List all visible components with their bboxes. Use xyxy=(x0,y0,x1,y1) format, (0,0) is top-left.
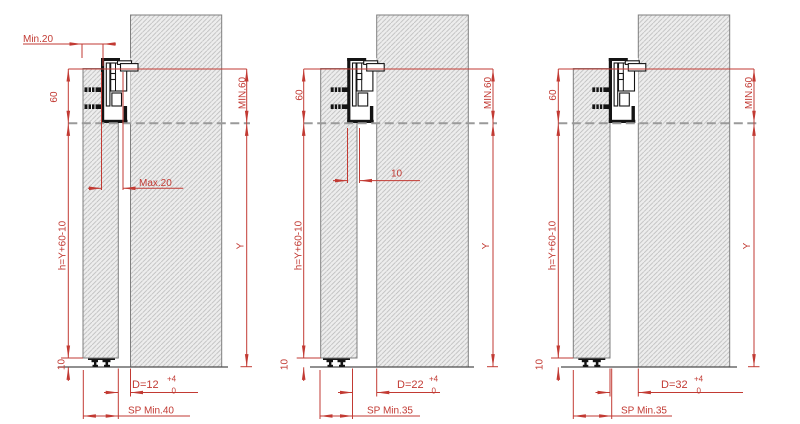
floor-guide xyxy=(323,359,350,367)
dim-label: h=Y+60-10 xyxy=(58,220,69,270)
dim-label: 0 xyxy=(172,387,177,396)
door-panel xyxy=(573,69,610,359)
dim-label: h=Y+60-10 xyxy=(294,220,305,270)
section-variant-d12: Min.20 60 MIN.60 Max.20 h=Y+60-10 10 Y D… xyxy=(23,15,252,419)
dim-label: D=12 xyxy=(132,379,159,391)
dim-label: SP Min.35 xyxy=(621,406,667,417)
drawing-canvas: Min.20 60 MIN.60 Max.20 h=Y+60-10 10 Y D… xyxy=(0,0,800,424)
dim-label: +4 xyxy=(694,375,704,384)
dim-label: h=Y+60-10 xyxy=(548,220,559,270)
section-variant-d32: 60 MIN.60 h=Y+60-10 10 Y D=32 +4 0 SP Mi… xyxy=(535,15,760,419)
section-variant-d22: 60 MIN.60 10 h=Y+60-10 10 Y D=22 +4 0 SP… xyxy=(280,15,499,419)
dim-label: 10 xyxy=(535,359,546,371)
technical-drawing: Min.20 60 MIN.60 Max.20 h=Y+60-10 10 Y D… xyxy=(0,0,800,424)
dim-label: SP Min.35 xyxy=(367,406,413,417)
dim-label: MIN.60 xyxy=(483,76,494,109)
dim-label: 0 xyxy=(432,387,437,396)
dim-label: SP Min.40 xyxy=(128,406,174,417)
dim-label: 0 xyxy=(697,387,702,396)
dim-label: Min.20 xyxy=(23,34,53,45)
wall-section xyxy=(377,15,469,367)
dim-label: MIN.60 xyxy=(744,76,755,109)
dim-label: D=22 xyxy=(397,379,424,391)
dim-label: Max.20 xyxy=(139,178,172,189)
dim-label: Y xyxy=(742,242,753,249)
wall-section xyxy=(131,15,222,367)
dim-label: 60 xyxy=(548,89,559,101)
dim-label: 10 xyxy=(391,169,403,180)
dim-label: +4 xyxy=(429,375,439,384)
dim-label: 10 xyxy=(280,359,291,371)
dim-label: 10 xyxy=(57,359,68,371)
dim-label: 60 xyxy=(49,91,60,103)
dim-label: Y xyxy=(236,242,247,249)
dim-label: 60 xyxy=(295,89,306,101)
wall-section xyxy=(638,15,729,367)
dim-label: +4 xyxy=(167,375,177,384)
dim-label: MIN.60 xyxy=(238,76,249,109)
dim-label: Y xyxy=(481,242,492,249)
floor-guide xyxy=(578,359,605,367)
dim-label: D=32 xyxy=(661,379,688,391)
floor-guide xyxy=(88,359,115,367)
